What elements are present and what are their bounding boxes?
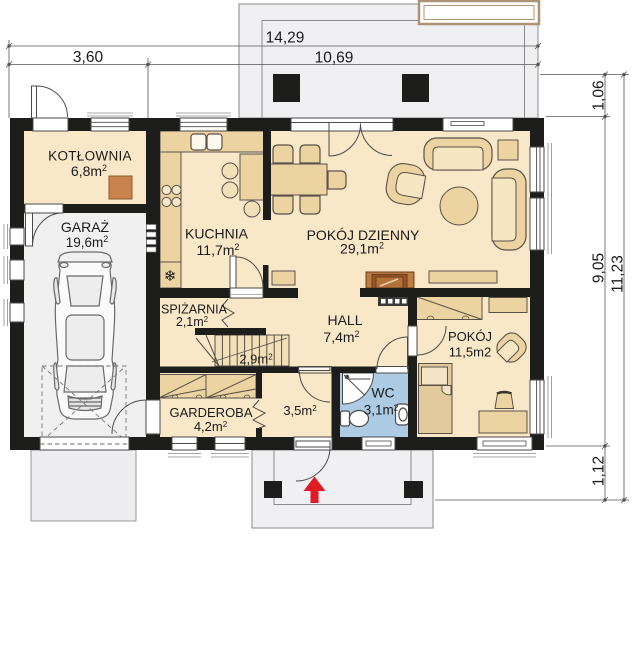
- svg-text:4,2m2: 4,2m2: [194, 419, 228, 434]
- svg-text:7,4m2: 7,4m2: [323, 329, 359, 345]
- svg-text:GARDEROBA: GARDEROBA: [169, 405, 252, 420]
- svg-text:KOTŁOWNIA: KOTŁOWNIA: [48, 149, 132, 164]
- svg-text:10,69: 10,69: [315, 50, 354, 67]
- svg-text:6,8m2: 6,8m2: [71, 163, 107, 179]
- svg-text:1,12: 1,12: [591, 456, 608, 486]
- svg-text:9,05: 9,05: [591, 253, 608, 283]
- svg-text:❄: ❄: [164, 268, 177, 285]
- svg-text:3,5m2: 3,5m2: [283, 403, 317, 418]
- svg-text:1,06: 1,06: [591, 80, 608, 110]
- svg-text:11,7m2: 11,7m2: [197, 242, 240, 258]
- svg-text:11,23: 11,23: [610, 255, 627, 293]
- svg-text:19,6m2: 19,6m2: [66, 234, 109, 250]
- svg-text:WC: WC: [371, 385, 394, 401]
- svg-text:2,9m2: 2,9m2: [239, 352, 273, 367]
- svg-text:14,29: 14,29: [266, 30, 305, 47]
- svg-text:HALL: HALL: [327, 312, 362, 328]
- svg-text:KUCHNIA: KUCHNIA: [185, 226, 249, 242]
- svg-text:11,5m2: 11,5m2: [449, 345, 491, 360]
- svg-text:POKÓJ: POKÓJ: [448, 329, 492, 344]
- svg-text:29,1m2: 29,1m2: [340, 241, 384, 257]
- svg-text:GARAŻ: GARAŻ: [61, 218, 110, 235]
- svg-text:3,1m2: 3,1m2: [364, 403, 399, 418]
- svg-text:3,60: 3,60: [73, 49, 104, 66]
